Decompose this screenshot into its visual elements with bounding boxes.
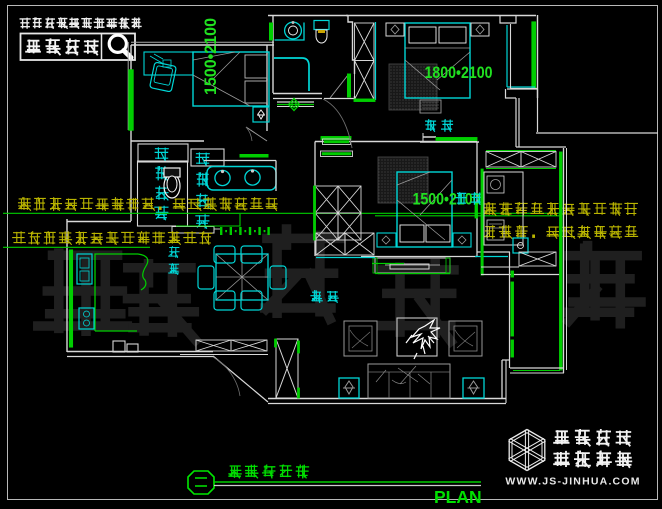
svg-text:1800•2100: 1800•2100 — [425, 64, 493, 82]
svg-text:1500•2100: 1500•2100 — [413, 191, 481, 209]
svg-text:WWW.JS-JINHUA.COM: WWW.JS-JINHUA.COM — [505, 476, 640, 488]
svg-text:1500•2100: 1500•2100 — [202, 18, 220, 95]
svg-text:PLAN: PLAN — [434, 487, 482, 507]
